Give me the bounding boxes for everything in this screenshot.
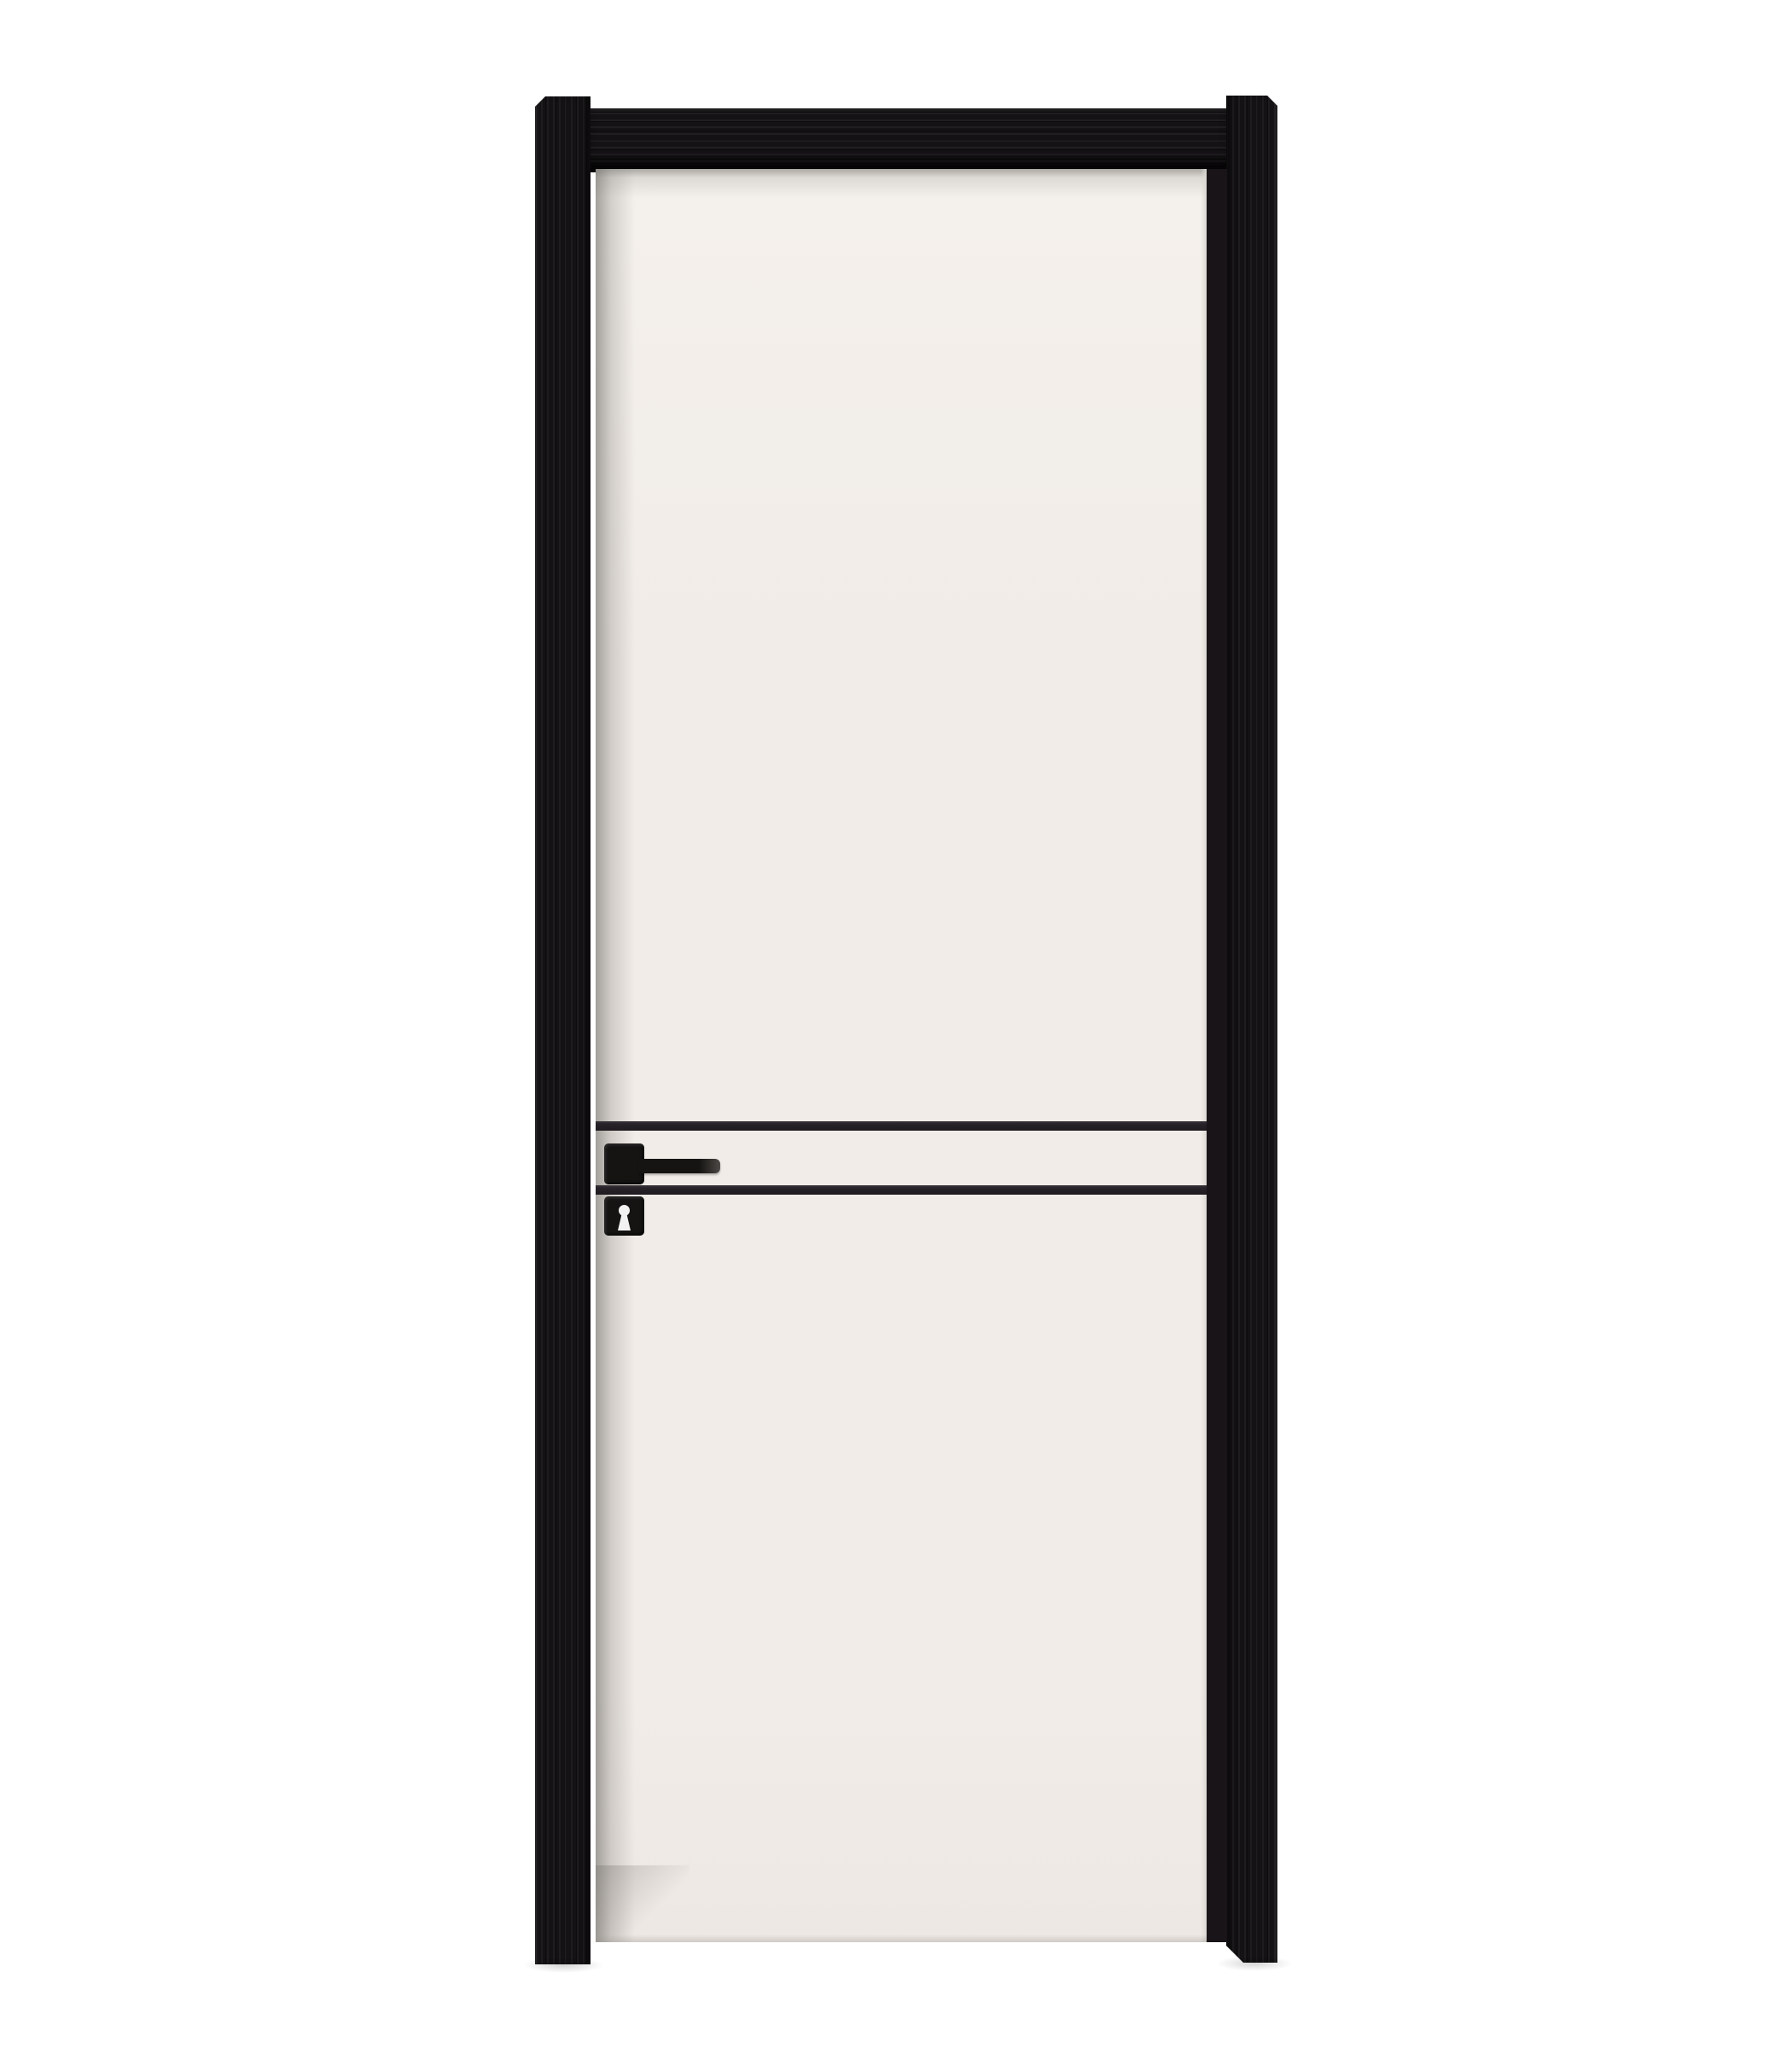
door-stop-reveal [1205,169,1227,1942]
door-frame-left-jamb [535,96,591,1964]
door-frame-right-jamb [1226,96,1277,1963]
leaf-left-shadow [596,169,635,1942]
leaf-top-shadow [596,169,1207,198]
door-product-photo [0,0,1792,2048]
keyhole-escutcheon [604,1196,644,1236]
groove-line-top [596,1121,1207,1131]
leaf-right-edge-highlight [1201,169,1207,1942]
keyhole-stem [618,1214,631,1231]
door-frame-header [591,108,1226,172]
leaf-bottom-corner-shadow [596,1865,689,1942]
groove-line-bottom [596,1185,1207,1195]
floor-shadow-right [1216,1956,1293,1971]
leaf-bottom-shade [596,1935,1207,1942]
floor-shadow-left [523,1958,604,1973]
door-leaf [596,169,1207,1942]
door-handle-lever [638,1159,720,1173]
